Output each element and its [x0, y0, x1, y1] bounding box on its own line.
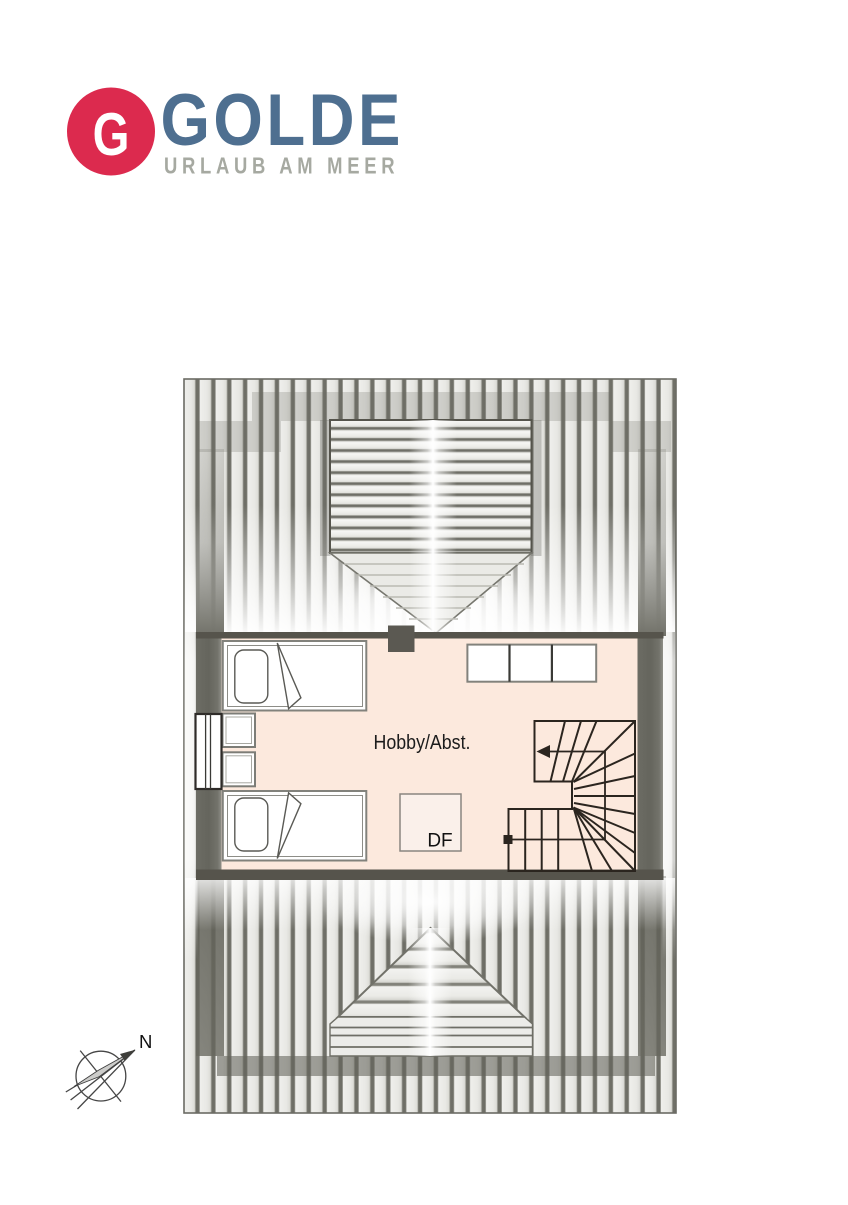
svg-text:GOLDE: GOLDE [161, 79, 404, 161]
svg-text:G: G [93, 102, 130, 169]
svg-text:DF: DF [427, 831, 452, 852]
svg-text:N: N [139, 1031, 152, 1052]
svg-text:URLAUB AM MEER: URLAUB AM MEER [164, 154, 399, 180]
svg-text:Hobby/Abst.: Hobby/Abst. [374, 732, 471, 754]
